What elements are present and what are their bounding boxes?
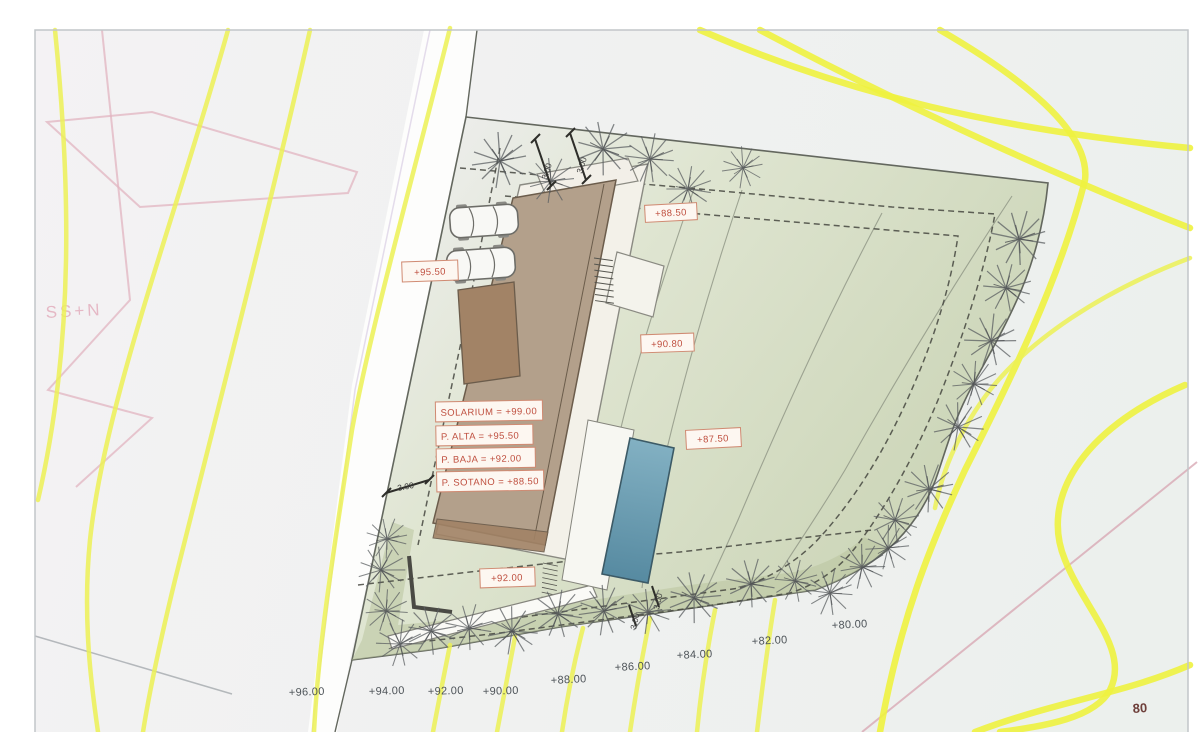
corner-contour-label: 80 <box>1132 700 1147 716</box>
svg-text:+88.50: +88.50 <box>655 207 687 220</box>
elevation-label-entrance: +88.50 <box>645 203 698 223</box>
elevation-label-mid-terrace: +90.80 <box>641 333 695 353</box>
site-plan-page: SS+N <box>0 0 1200 732</box>
contour-label: +96.00 <box>289 686 325 699</box>
elevation-label-pool-terrace: +87.50 <box>686 428 742 450</box>
neighbor-parcel-label: SS+N <box>45 300 103 322</box>
level-solarium: SOLARIUM = +99.00 <box>440 406 537 419</box>
level-p-baja: P. BAJA = +92.00 <box>441 453 521 465</box>
svg-text:+90.80: +90.80 <box>651 338 683 350</box>
contour-label: +94.00 <box>369 685 405 698</box>
elevation-label-parking: +95.50 <box>402 260 459 282</box>
elevation-label-lower-terrace: +92.00 <box>480 567 536 588</box>
level-p-sotano: P. SOTANO = +88.50 <box>442 476 539 489</box>
lower-volume <box>458 282 520 384</box>
svg-text:+87.50: +87.50 <box>697 433 729 446</box>
contour-label: +82.00 <box>752 634 788 648</box>
site-plan-drawing: SS+N <box>0 0 1200 732</box>
level-p-alta: P. ALTA = +95.50 <box>441 430 519 442</box>
contour-label: +86.00 <box>615 660 651 674</box>
contour-label: +92.00 <box>428 685 464 698</box>
svg-text:+92.00: +92.00 <box>491 572 523 584</box>
svg-text:+95.50: +95.50 <box>414 266 446 278</box>
contour-label: +88.00 <box>551 673 587 687</box>
contour-label: +80.00 <box>832 618 868 632</box>
contour-label: +84.00 <box>677 648 713 662</box>
contour-label: +90.00 <box>483 685 519 698</box>
car <box>449 201 519 242</box>
